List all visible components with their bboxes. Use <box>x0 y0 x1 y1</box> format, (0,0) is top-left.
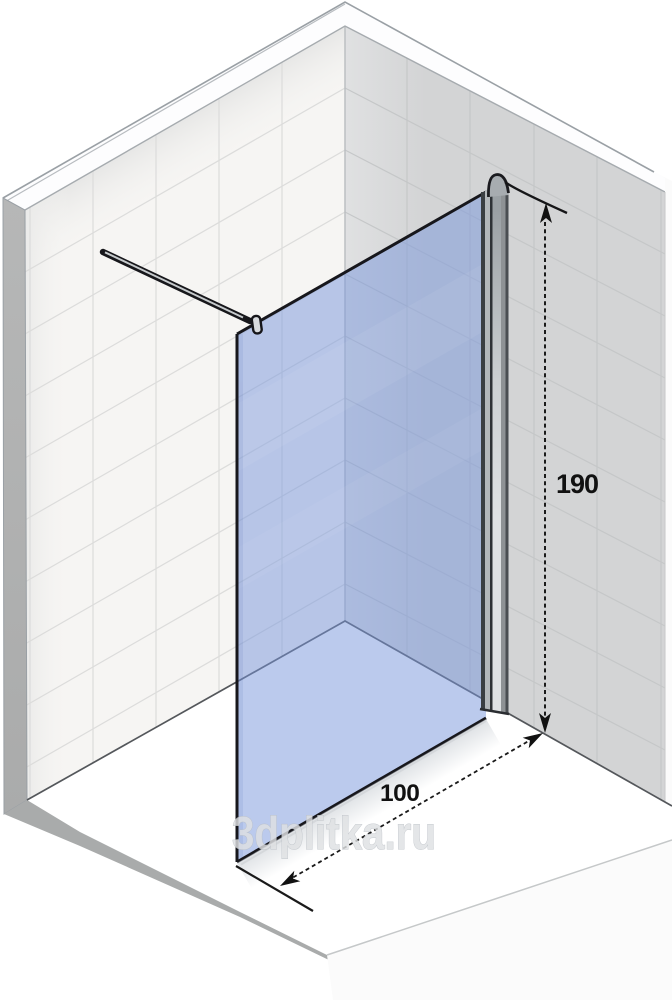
svg-text:190: 190 <box>556 469 598 499</box>
svg-text:3dplitka.ru: 3dplitka.ru <box>232 807 436 859</box>
svg-text:100: 100 <box>380 780 419 807</box>
